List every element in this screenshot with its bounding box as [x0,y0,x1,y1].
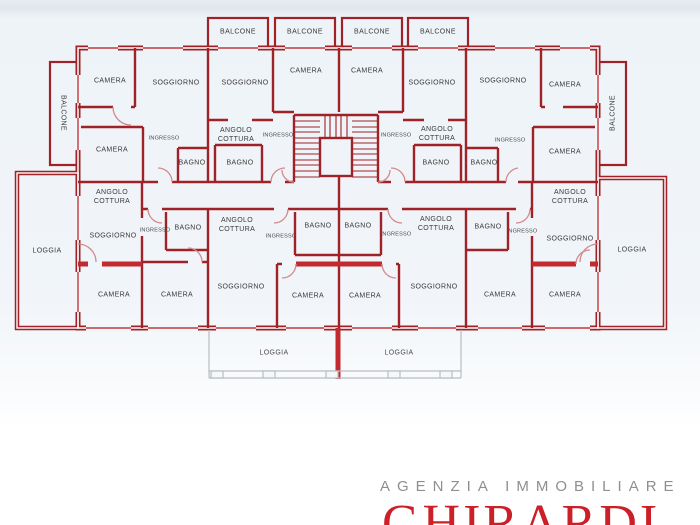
agency-name-line: AGENZIA IMMOBILIARE [380,478,700,495]
floor-plan-page: BALCONEBALCONEBALCONEBALCONEBALCONEBALCO… [0,0,700,525]
room-label-camera-top-center-right: CAMERA [351,66,383,75]
room-label-angolo-cottura-4: ANGOLO COTTURA [214,216,260,234]
room-label-angolo-cottura-5: ANGOLO COTTURA [413,215,459,233]
room-label-balcone-top-3: BALCONE [354,27,390,36]
room-label-balcone-right: BALCONE [608,95,617,131]
room-label-soggiorno-mid-right: SOGGIORNO [546,234,593,243]
room-label-ingresso-1: INGRESSO [149,135,180,142]
room-label-loggia-left: LOGGIA [33,246,62,255]
room-label-soggiorno-mid-3: SOGGIORNO [410,282,457,291]
room-label-soggiorno-top-4: SOGGIORNO [479,76,526,85]
room-label-soggiorno-top-3: SOGGIORNO [408,78,455,87]
room-label-soggiorno-top-1: SOGGIORNO [152,78,199,87]
bottom-loggia-outline [209,330,461,378]
agency-brand-name: GHIRARDI [382,494,660,525]
room-label-bagno-4: BAGNO [470,158,497,167]
room-label-bagno-6: BAGNO [304,221,331,230]
room-label-soggiorno-top-2: SOGGIORNO [221,78,268,87]
room-label-ingresso-8: INGRESSO [507,228,538,235]
room-label-camera-bottom-4: CAMERA [349,291,381,300]
room-label-camera-left-2: CAMERA [96,145,128,154]
room-label-ingresso-2: INGRESSO [263,132,294,139]
room-label-angolo-cottura-6: ANGOLO COTTURA [547,188,593,206]
room-label-bagno-2: BAGNO [226,158,253,167]
interior-walls [78,48,598,328]
room-label-soggiorno-mid-left: SOGGIORNO [89,231,136,240]
room-label-balcone-top-4: BALCONE [420,27,456,36]
agency-logo: AGENZIA IMMOBILIARE GHIRARDI [380,478,700,495]
room-label-bagno-1: BAGNO [178,158,205,167]
stairwell [294,115,378,182]
room-label-balcone-top-1: BALCONE [220,27,256,36]
room-label-balcone-top-2: BALCONE [287,27,323,36]
room-label-camera-top-center-left: CAMERA [290,66,322,75]
room-label-angolo-cottura-1: ANGOLO COTTURA [213,126,259,144]
room-label-ingresso-6: INGRESSO [266,233,297,240]
room-label-camera-bottom-6: CAMERA [549,290,581,299]
room-label-ingresso-5: INGRESSO [140,227,171,234]
room-label-bagno-7: BAGNO [344,221,371,230]
room-label-ingresso-4: INGRESSO [495,137,526,144]
room-label-camera-top-right: CAMERA [549,80,581,89]
room-label-soggiorno-mid-2: SOGGIORNO [217,282,264,291]
room-label-camera-right-2: CAMERA [549,147,581,156]
room-label-bagno-8: BAGNO [474,222,501,231]
room-label-angolo-cottura-2: ANGOLO COTTURA [414,125,460,143]
stair-treads [294,115,378,177]
room-label-camera-bottom-3: CAMERA [292,291,324,300]
room-label-balcone-left: BALCONE [58,95,67,131]
room-label-ingresso-3: INGRESSO [381,132,412,139]
room-label-ingresso-7: INGRESSO [381,231,412,238]
room-label-camera-bottom-1: CAMERA [98,290,130,299]
room-label-loggia-bottom-2: LOGGIA [385,348,414,357]
room-label-angolo-cottura-3: ANGOLO COTTURA [89,188,135,206]
room-label-camera-top-left: CAMERA [94,76,126,85]
room-label-loggia-bottom-1: LOGGIA [260,348,289,357]
room-label-loggia-right: LOGGIA [618,245,647,254]
room-label-camera-bottom-5: CAMERA [484,290,516,299]
room-label-camera-bottom-2: CAMERA [161,290,193,299]
room-label-bagno-5: BAGNO [174,223,201,232]
room-label-bagno-3: BAGNO [422,158,449,167]
